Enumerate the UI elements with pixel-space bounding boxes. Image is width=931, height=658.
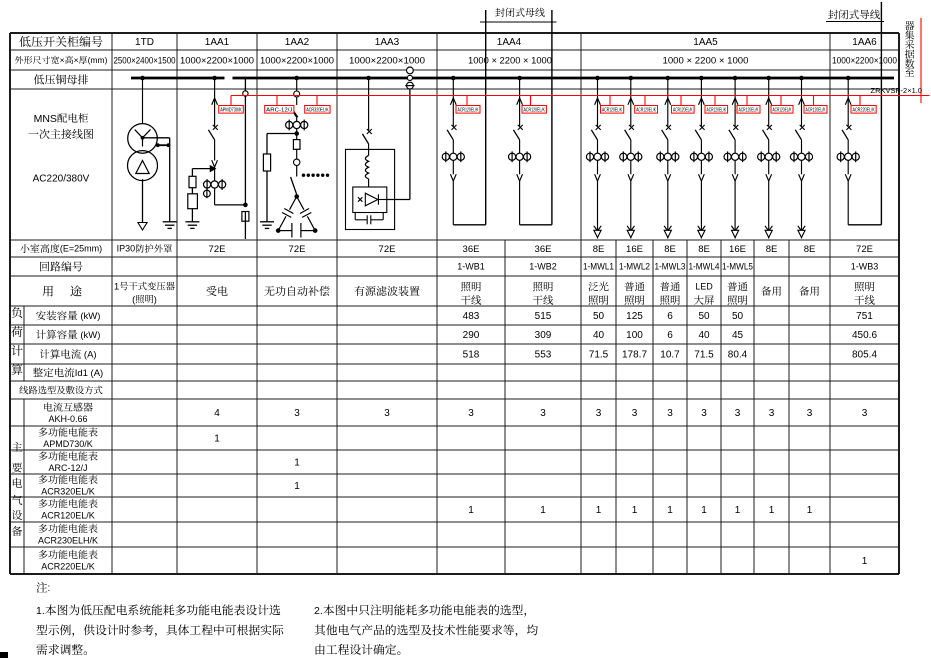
svg-text:1000×2200×1000: 1000×2200×1000 — [349, 55, 425, 65]
svg-text:2500×2400×1500: 2500×2400×1500 — [114, 55, 176, 65]
svg-text:1.: 1. — [36, 605, 45, 617]
svg-text:1000×2200×1000: 1000×2200×1000 — [180, 55, 254, 65]
svg-text:3: 3 — [769, 408, 775, 419]
svg-text:80.4: 80.4 — [728, 350, 748, 361]
svg-text:1: 1 — [468, 505, 474, 516]
svg-text:178.7: 178.7 — [622, 350, 647, 361]
svg-text:45: 45 — [732, 330, 744, 341]
svg-text:8E: 8E — [804, 244, 816, 255]
svg-text:IP30: IP30 — [117, 244, 136, 254]
svg-text:ACR120EL/K: ACR120EL/K — [673, 107, 693, 113]
svg-text:8E: 8E — [766, 244, 778, 255]
svg-text:1: 1 — [540, 505, 546, 516]
svg-text:450.6: 450.6 — [852, 330, 877, 341]
svg-text:1: 1 — [596, 505, 602, 516]
svg-text:1-MWL3: 1-MWL3 — [655, 262, 686, 272]
svg-text::: : — [48, 583, 51, 594]
svg-text:3: 3 — [632, 408, 638, 419]
svg-text:1-WB1: 1-WB1 — [457, 262, 485, 272]
svg-text:ACR320EL/K: ACR320EL/K — [306, 107, 329, 113]
svg-text:×: × — [60, 55, 65, 65]
svg-text:ACR120EL/K: ACR120EL/K — [602, 107, 622, 113]
svg-text:1-MWL1: 1-MWL1 — [583, 262, 614, 272]
svg-text:3: 3 — [667, 408, 673, 419]
svg-text:3: 3 — [735, 408, 741, 419]
svg-text:1-WB3: 1-WB3 — [851, 262, 879, 272]
svg-text:ACR120EL/K: ACR120EL/K — [773, 107, 792, 113]
svg-text:AC220/380V: AC220/380V — [33, 174, 90, 185]
svg-text:3: 3 — [807, 408, 813, 419]
svg-text:10.7: 10.7 — [660, 350, 680, 361]
svg-text:125: 125 — [626, 311, 643, 322]
svg-text:APMD730/K: APMD730/K — [220, 107, 242, 113]
svg-text:): ) — [154, 294, 157, 304]
svg-text:8E: 8E — [664, 244, 676, 255]
svg-text:ACR120EL/K: ACR120EL/K — [806, 107, 826, 113]
svg-text:ARC-12/J: ARC-12/J — [266, 107, 293, 113]
svg-text:518: 518 — [463, 350, 480, 361]
svg-text:290: 290 — [463, 330, 480, 341]
svg-text:×: × — [74, 55, 79, 65]
svg-text:ACR120EL/K: ACR120EL/K — [739, 107, 759, 113]
svg-text:1: 1 — [214, 434, 220, 445]
svg-text:8E: 8E — [593, 244, 605, 255]
svg-text:1-WB2: 1-WB2 — [529, 262, 557, 272]
svg-text:40: 40 — [698, 330, 710, 341]
svg-text:ACR220EL/K: ACR220EL/K — [853, 107, 875, 113]
svg-text:1: 1 — [632, 505, 638, 516]
svg-text:2.: 2. — [314, 605, 323, 617]
svg-text:71.5: 71.5 — [694, 350, 714, 361]
svg-text:AKH-0.66: AKH-0.66 — [48, 414, 87, 424]
svg-text:36E: 36E — [463, 244, 480, 255]
svg-text:1000×2200×1000: 1000×2200×1000 — [832, 55, 897, 65]
svg-text:50: 50 — [698, 311, 710, 322]
svg-text:3: 3 — [862, 408, 868, 419]
svg-text:553: 553 — [535, 350, 552, 361]
svg-text:72E: 72E — [379, 244, 396, 255]
svg-text:APMD730/K: APMD730/K — [43, 439, 93, 449]
svg-text:ACR120EL/K: ACR120EL/K — [707, 107, 727, 113]
svg-text:1AA6: 1AA6 — [852, 37, 877, 48]
svg-text:36E: 36E — [535, 244, 552, 255]
svg-text:751: 751 — [856, 311, 873, 322]
svg-text:3: 3 — [596, 408, 602, 419]
svg-text:1AA5: 1AA5 — [693, 37, 718, 48]
svg-text:ACR120EL/K: ACR120EL/K — [636, 107, 656, 113]
svg-text:1-MWL5: 1-MWL5 — [722, 262, 753, 272]
svg-text:6: 6 — [667, 311, 673, 322]
svg-text:1: 1 — [114, 281, 119, 291]
svg-text:1-MWL2: 1-MWL2 — [619, 262, 650, 272]
svg-text:6: 6 — [667, 330, 673, 341]
svg-text:1: 1 — [862, 556, 868, 567]
svg-text:3: 3 — [540, 408, 546, 419]
svg-text:1TD: 1TD — [135, 37, 154, 48]
svg-text:ACR120EL/K: ACR120EL/K — [458, 107, 479, 113]
svg-text:483: 483 — [463, 311, 480, 322]
svg-text:ARC-12/J: ARC-12/J — [48, 463, 87, 473]
svg-text:3: 3 — [294, 408, 300, 419]
svg-text:1AA4: 1AA4 — [497, 37, 522, 48]
svg-text:515: 515 — [535, 311, 552, 322]
svg-text:Id1 (A): Id1 (A) — [75, 368, 104, 379]
svg-text:3: 3 — [701, 408, 707, 419]
svg-text:1: 1 — [667, 505, 673, 516]
svg-text:1000×2200×1000: 1000×2200×1000 — [260, 55, 334, 65]
svg-text:(kW): (kW) — [78, 330, 101, 341]
svg-text:ACR220EL/K: ACR220EL/K — [41, 562, 95, 572]
svg-text:ZRKVSP-2×1.0: ZRKVSP-2×1.0 — [871, 86, 922, 95]
svg-text:ACR120EL/K: ACR120EL/K — [41, 511, 95, 521]
svg-text:1: 1 — [735, 505, 741, 516]
svg-text:805.4: 805.4 — [852, 350, 877, 361]
svg-text:40: 40 — [593, 330, 605, 341]
svg-text:72E: 72E — [289, 244, 306, 255]
svg-text:72E: 72E — [856, 244, 873, 255]
svg-text:(kW): (kW) — [78, 311, 101, 322]
svg-text:1: 1 — [294, 481, 300, 492]
svg-text:16E: 16E — [729, 244, 746, 255]
svg-text:(mm): (mm) — [88, 55, 108, 65]
svg-text:8E: 8E — [698, 244, 710, 255]
svg-text:1AA2: 1AA2 — [285, 37, 310, 48]
svg-text:50: 50 — [593, 311, 605, 322]
svg-text:(E=25mm): (E=25mm) — [60, 244, 102, 254]
svg-text:ACR320EL/K: ACR320EL/K — [41, 487, 95, 497]
svg-text:100: 100 — [626, 330, 643, 341]
svg-text:1-MWL4: 1-MWL4 — [689, 262, 720, 272]
svg-text:1000 × 2200 × 1000: 1000 × 2200 × 1000 — [663, 55, 749, 65]
svg-text:1000 × 2200 × 1000: 1000 × 2200 × 1000 — [468, 55, 552, 65]
svg-text:3: 3 — [384, 408, 390, 419]
svg-text:1AA1: 1AA1 — [205, 37, 230, 48]
svg-text:(A): (A) — [81, 349, 96, 360]
svg-text:71.5: 71.5 — [589, 350, 609, 361]
svg-text:4: 4 — [214, 408, 220, 419]
svg-text:ACR120EL/K: ACR120EL/K — [524, 107, 546, 113]
svg-text:1: 1 — [701, 505, 707, 516]
svg-text:72E: 72E — [209, 244, 226, 255]
svg-text:MNS: MNS — [34, 113, 57, 125]
svg-text:1: 1 — [807, 505, 813, 516]
svg-text:ACR230ELH/K: ACR230ELH/K — [38, 536, 98, 546]
svg-text:3: 3 — [468, 408, 474, 419]
svg-text:309: 309 — [535, 330, 552, 341]
svg-text:1: 1 — [769, 505, 775, 516]
svg-text:1: 1 — [294, 458, 300, 469]
svg-text:1AA3: 1AA3 — [375, 37, 400, 48]
svg-text:50: 50 — [732, 311, 744, 322]
svg-text:LED: LED — [695, 282, 713, 292]
svg-text:16E: 16E — [626, 244, 643, 255]
